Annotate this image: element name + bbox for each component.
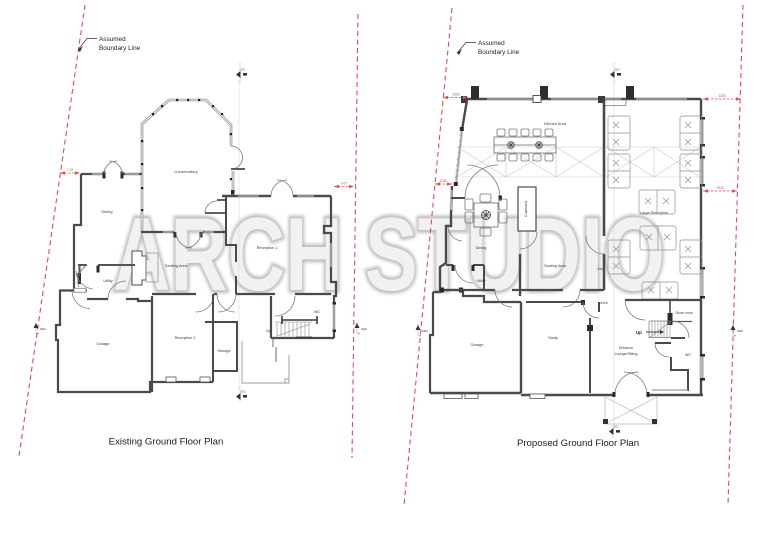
svg-text:Seating Area: Seating Area bbox=[544, 264, 567, 268]
svg-text:Conservatory: Conservatory bbox=[174, 169, 197, 174]
svg-text:1203: 1203 bbox=[452, 93, 459, 97]
svg-text:Proposed Ground Floor Plan: Proposed Ground Floor Plan bbox=[517, 438, 639, 449]
svg-text:1138: 1138 bbox=[440, 179, 447, 183]
svg-text:SEC: SEC bbox=[241, 68, 246, 72]
svg-text:Seating Area: Seating Area bbox=[165, 263, 188, 268]
svg-text:SEC: SEC bbox=[241, 390, 246, 394]
svg-text:A: A bbox=[419, 334, 421, 338]
svg-text:Up: Up bbox=[636, 330, 642, 335]
svg-text:SEC: SEC bbox=[361, 327, 368, 331]
svg-text:WC: WC bbox=[685, 353, 692, 357]
svg-text:SEC: SEC bbox=[422, 329, 429, 333]
svg-text:Dining: Dining bbox=[476, 246, 487, 250]
svg-text:Dining: Dining bbox=[101, 209, 112, 214]
svg-text:Assumed: Assumed bbox=[99, 36, 126, 43]
svg-text:SEC: SEC bbox=[40, 327, 47, 331]
svg-text:WC: WC bbox=[314, 310, 321, 314]
svg-text:+1127: +1127 bbox=[716, 186, 725, 190]
svg-text:Up: Up bbox=[266, 329, 271, 333]
svg-text:SEC: SEC bbox=[615, 68, 620, 72]
svg-text:1203: 1203 bbox=[718, 94, 725, 98]
svg-text:Storage: Storage bbox=[217, 349, 230, 353]
svg-text:Existing Ground Floor Plan: Existing Ground Floor Plan bbox=[109, 437, 224, 448]
svg-text:ARCH STUDIO: ARCH STUDIO bbox=[113, 197, 665, 313]
svg-text:Boundary Line: Boundary Line bbox=[99, 45, 141, 52]
svg-text:A: A bbox=[734, 334, 736, 338]
svg-text:Utility: Utility bbox=[103, 279, 112, 283]
svg-text:Utility: Utility bbox=[476, 279, 485, 283]
svg-text:Garage: Garage bbox=[471, 342, 484, 347]
svg-text:A: A bbox=[358, 332, 360, 336]
svg-text:1.39: 1.39 bbox=[67, 168, 73, 172]
svg-text:A: A bbox=[37, 332, 39, 336]
svg-text:0.07: 0.07 bbox=[341, 182, 347, 186]
svg-text:Study: Study bbox=[548, 335, 558, 340]
svg-text:Lounge/Sitting: Lounge/Sitting bbox=[615, 352, 638, 356]
svg-text:Arch: Arch bbox=[600, 301, 607, 305]
svg-text:Assumed: Assumed bbox=[478, 40, 505, 47]
svg-text:Reception 2: Reception 2 bbox=[175, 335, 196, 340]
svg-text:Garage: Garage bbox=[97, 341, 110, 346]
svg-text:Cupboard: Cupboard bbox=[524, 201, 528, 217]
svg-text:Kitchen Area: Kitchen Area bbox=[544, 121, 567, 126]
svg-text:Boundary Line: Boundary Line bbox=[478, 49, 520, 56]
svg-text:Store room: Store room bbox=[675, 311, 692, 315]
svg-text:Reception 1: Reception 1 bbox=[257, 245, 278, 250]
svg-text:SEC: SEC bbox=[614, 425, 619, 429]
svg-text:SEC: SEC bbox=[737, 329, 744, 333]
svg-text:Entrance: Entrance bbox=[619, 346, 633, 350]
svg-text:Large Reception: Large Reception bbox=[640, 211, 668, 215]
